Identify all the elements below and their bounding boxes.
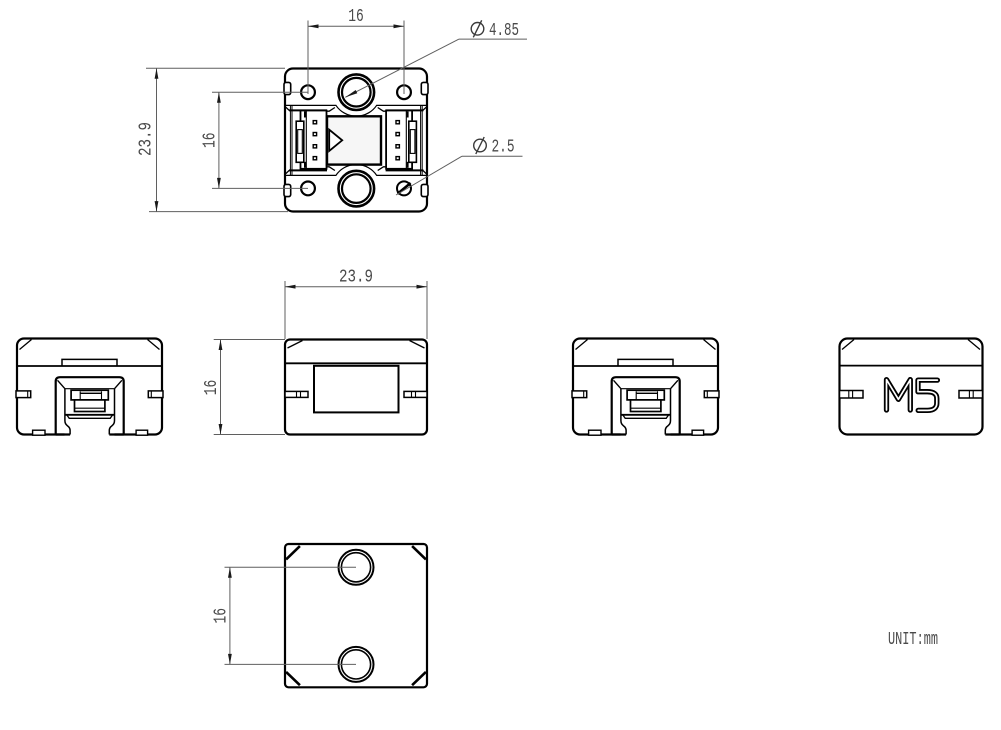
svg-text:4.85: 4.85 xyxy=(489,21,519,41)
svg-text:UNIT:mm: UNIT:mm xyxy=(888,630,938,650)
svg-text:16: 16 xyxy=(212,608,232,624)
svg-text:16: 16 xyxy=(202,380,222,396)
svg-text:23.9: 23.9 xyxy=(339,268,373,288)
svg-text:23.9: 23.9 xyxy=(137,122,157,156)
svg-text:16: 16 xyxy=(348,7,364,27)
svg-text:2.5: 2.5 xyxy=(492,138,515,158)
svg-text:16: 16 xyxy=(201,133,221,149)
